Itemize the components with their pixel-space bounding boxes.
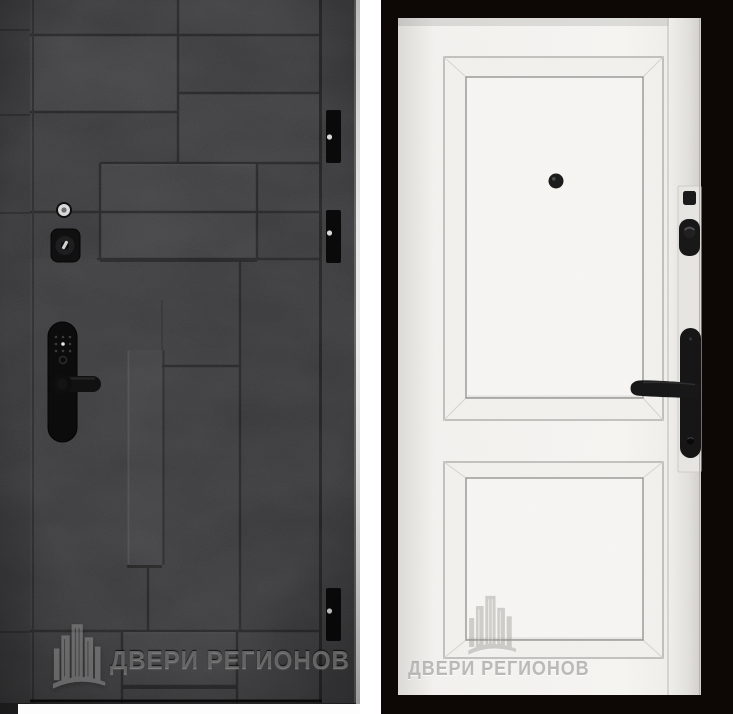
floor-strip (18, 704, 360, 714)
product-image-two-door-views: ДВЕРИ РЕГИОНОВ (0, 0, 733, 714)
dark-door-scene (0, 0, 360, 714)
door-interior-photo: ДВЕРИ РЕГИОНОВ (381, 0, 733, 714)
door-exterior-photo: ДВЕРИ РЕГИОНОВ (0, 0, 360, 714)
white-door-scene (381, 0, 733, 714)
